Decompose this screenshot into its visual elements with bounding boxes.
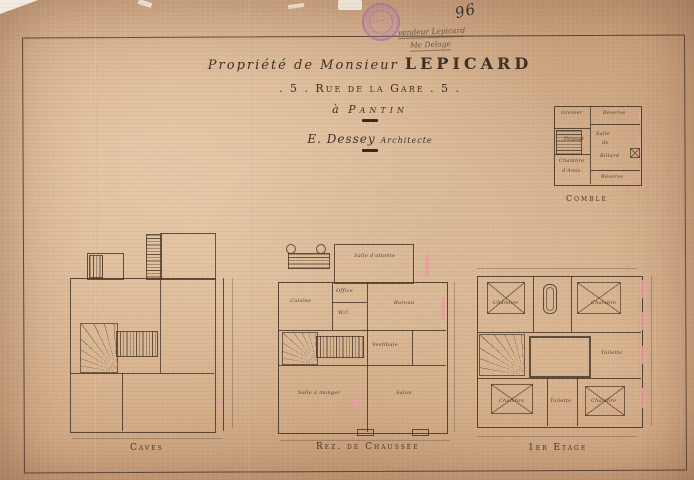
staircase — [146, 234, 162, 280]
wall — [160, 278, 161, 373]
plan-caves — [62, 228, 240, 443]
scanned-plan-sheet: ∙∙∙∙∙ 96 vendeur Lepicard Me Delage Prop… — [0, 0, 694, 480]
wall — [554, 128, 590, 129]
room-label: Réserve — [603, 110, 626, 116]
handwritten-note: Me Delage — [410, 39, 451, 51]
wall — [547, 378, 548, 426]
room-label: Chambre — [499, 398, 524, 404]
bed-hatch — [487, 282, 525, 314]
wall — [477, 378, 641, 379]
room-label: Salle — [596, 131, 610, 137]
bay-step — [412, 429, 429, 436]
title-script: Propriété de Monsieur — [208, 58, 399, 73]
bathtub — [543, 284, 557, 314]
room-label: Toilette — [601, 350, 623, 356]
room-label: Billard — [600, 153, 619, 159]
room-label: W.C. — [338, 310, 350, 316]
city-prefix: à — [332, 103, 342, 116]
winder-staircase — [282, 332, 318, 365]
bed-hatch — [577, 282, 621, 314]
room-label: Chambre — [493, 300, 518, 306]
chimney-flue — [641, 388, 645, 408]
dimension-line — [232, 278, 233, 428]
wall — [223, 278, 224, 431]
porch-steps — [89, 255, 103, 278]
paper-scuff — [138, 0, 153, 8]
dimension-line — [651, 276, 652, 426]
dimension-line — [72, 438, 222, 439]
wall — [533, 276, 534, 332]
wall — [332, 302, 367, 303]
dimension-line — [477, 436, 637, 437]
room-label: Office — [336, 288, 353, 294]
chimney-flue — [425, 254, 429, 276]
room-label: Salon — [396, 390, 412, 396]
chimney-flue — [354, 398, 359, 409]
wall — [122, 373, 123, 431]
plan-comble: GrenierRéserveDégagtSalledeBillardChambr… — [546, 98, 650, 198]
wall — [590, 124, 640, 125]
room-label: Réserve — [601, 174, 624, 180]
room-label: Chambre — [591, 300, 616, 306]
owner-name: LEPICARD — [405, 54, 532, 73]
room-label: Cuisine — [290, 298, 311, 304]
chimney-flue — [441, 298, 445, 320]
chimney-flue — [217, 400, 222, 410]
title-block: Propriété de Monsieur LEPICARD . 5 . Rue… — [195, 54, 545, 152]
wall — [590, 170, 640, 171]
room-label: Dégagt — [564, 136, 584, 142]
architect-role: Architecte — [380, 136, 432, 145]
plan-rez-de-chaussee: Salle d'attenteCuisineOfficeW.C.BureauVe… — [272, 240, 462, 445]
wall — [412, 330, 413, 365]
architect-name: E. Dessey — [307, 132, 375, 146]
room-label: Salle à manger — [298, 390, 340, 396]
winder-staircase — [80, 323, 118, 373]
staircase — [116, 331, 158, 357]
property-title: Propriété de Monsieur LEPICARD — [195, 54, 545, 73]
wall — [590, 106, 591, 184]
room-label: Chambre — [559, 158, 584, 164]
room-label: Vestibule — [372, 342, 398, 348]
chimney-flue — [638, 110, 641, 120]
paper-scuff — [288, 3, 304, 9]
dimension-line — [477, 268, 637, 269]
wall — [160, 233, 216, 280]
plan-premier-etage: ChambreChambreToiletteChambreToiletteCha… — [465, 240, 655, 445]
caption-premier-etage: 1er Etage — [528, 443, 587, 453]
city-line: à Pantin — [195, 103, 545, 122]
dimension-line — [454, 282, 455, 432]
caption-comble: Comble — [566, 194, 608, 203]
chimney-flue — [641, 312, 645, 330]
staircase — [556, 130, 582, 155]
caption-rez-de-chaussee: Rez. de Chaussée — [316, 442, 419, 452]
chimney-flue — [641, 280, 645, 298]
caption-caves: Caves — [130, 443, 164, 453]
paper-corner-tear — [0, 0, 38, 14]
room-label: Bureau — [394, 300, 414, 306]
room-label: de — [602, 140, 609, 146]
wall — [332, 282, 333, 330]
underline-dash — [362, 149, 378, 152]
room-label: d'Amis — [562, 168, 581, 174]
wall — [278, 330, 446, 331]
chimney-flue — [641, 346, 645, 364]
room-label: Chambre — [591, 398, 616, 404]
handwritten-note: vendeur Lepicard — [398, 26, 466, 39]
stairwell-void — [529, 336, 591, 378]
porch-steps — [288, 253, 330, 269]
wall — [577, 378, 578, 426]
room-label: Grenier — [561, 110, 583, 116]
dimension-line — [280, 440, 450, 441]
handwritten-page-number: 96 — [453, 0, 478, 22]
wall — [70, 373, 214, 374]
wall — [334, 244, 414, 284]
wall — [278, 365, 446, 366]
city-name: Pantin — [348, 103, 408, 116]
room-label: Toilette — [550, 398, 572, 404]
winder-staircase — [479, 334, 525, 376]
hearth — [630, 148, 640, 158]
wall — [367, 282, 368, 432]
address-line: . 5 . Rue de la Gare . 5 . — [195, 82, 545, 95]
staircase — [316, 336, 364, 358]
wall — [571, 276, 572, 332]
bay-step — [357, 429, 374, 436]
chimney-flue — [638, 172, 641, 182]
underline-dash — [362, 119, 378, 122]
wall — [477, 332, 641, 333]
architect-line: E. Dessey Architecte — [195, 132, 545, 152]
paper-tear — [338, 0, 362, 10]
room-label: Salle d'attente — [354, 253, 395, 259]
